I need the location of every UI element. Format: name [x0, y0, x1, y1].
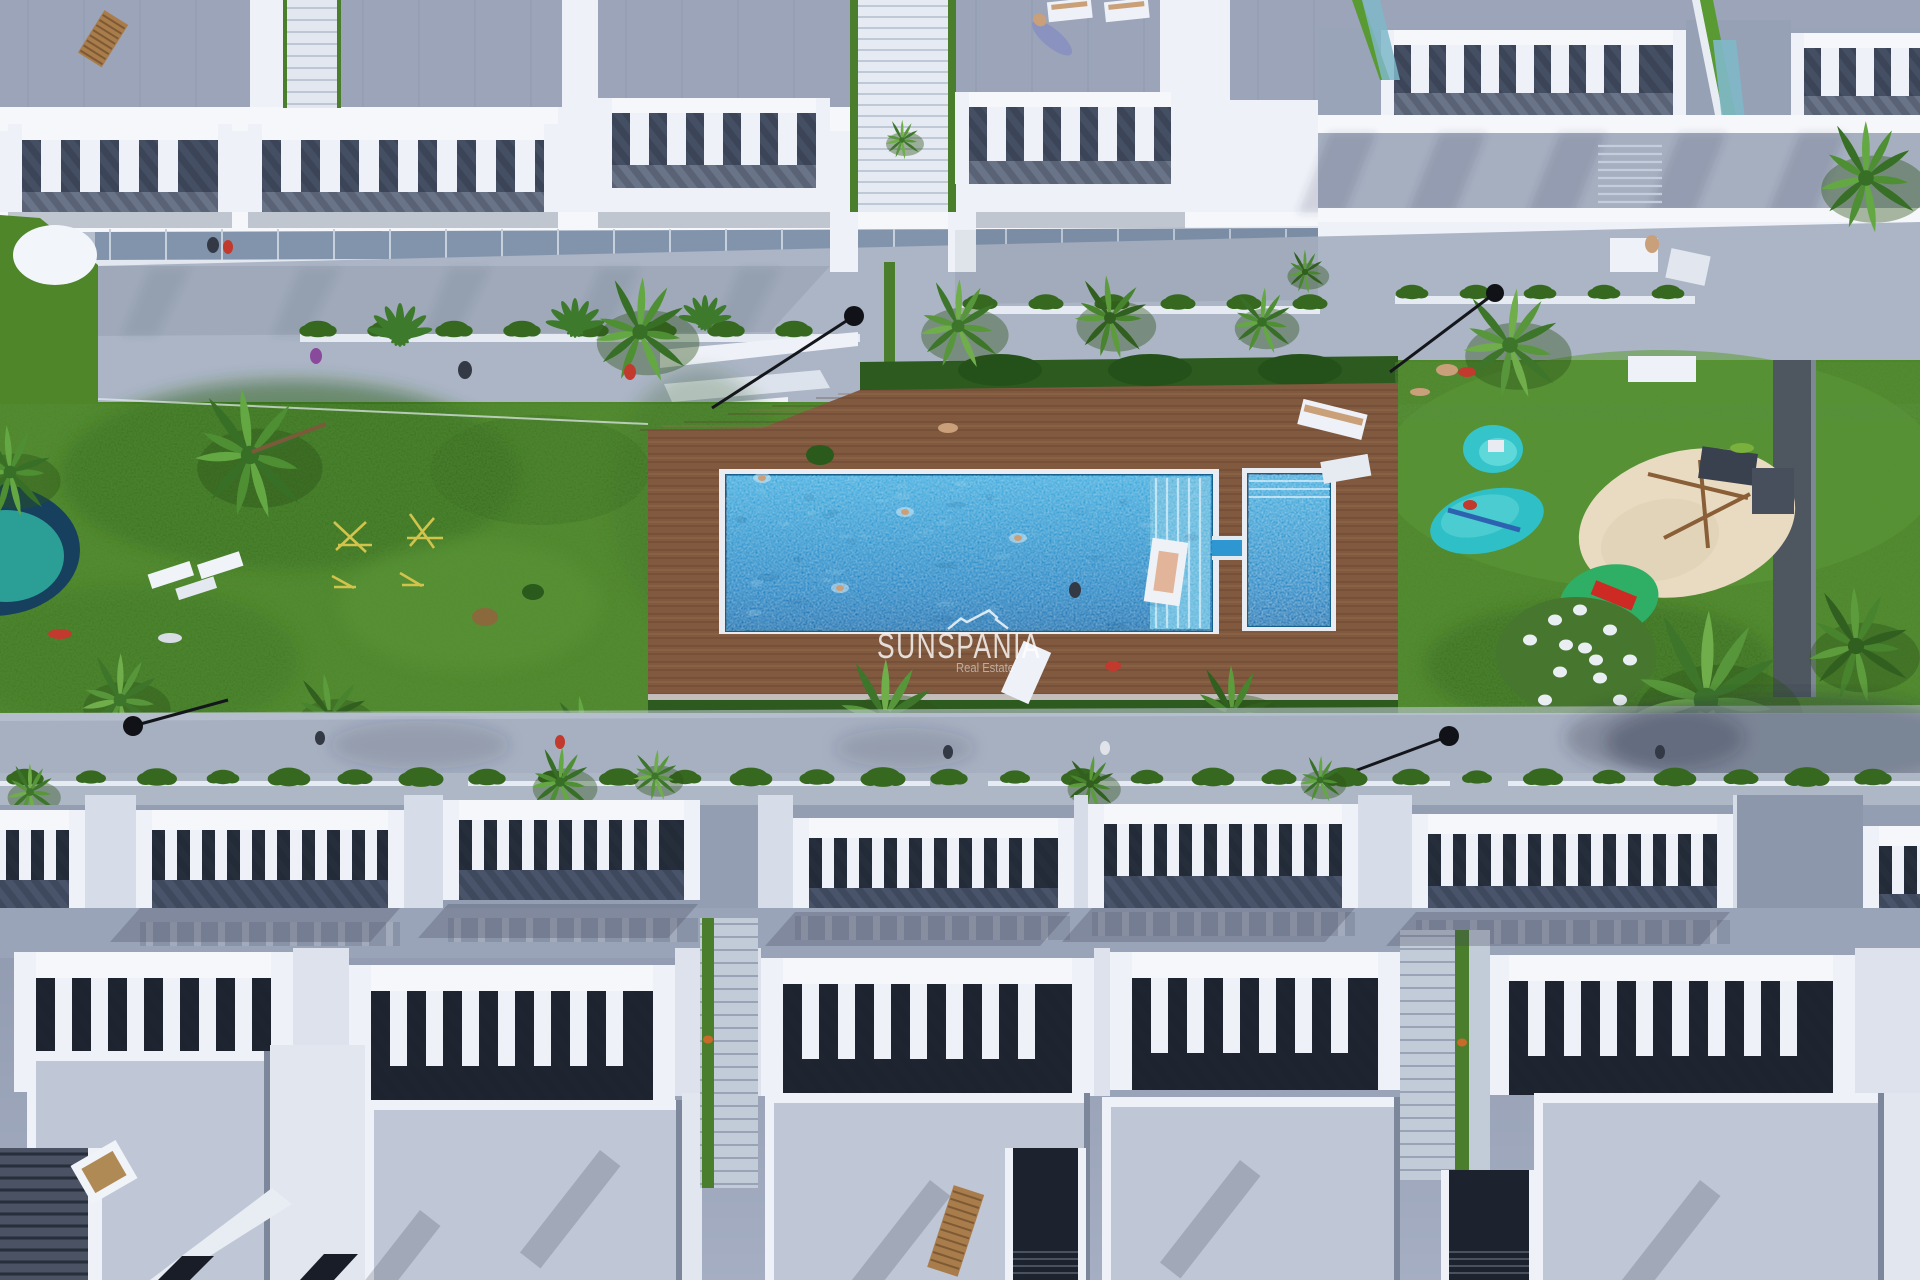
svg-text:Real Estate: Real Estate [956, 660, 1014, 675]
